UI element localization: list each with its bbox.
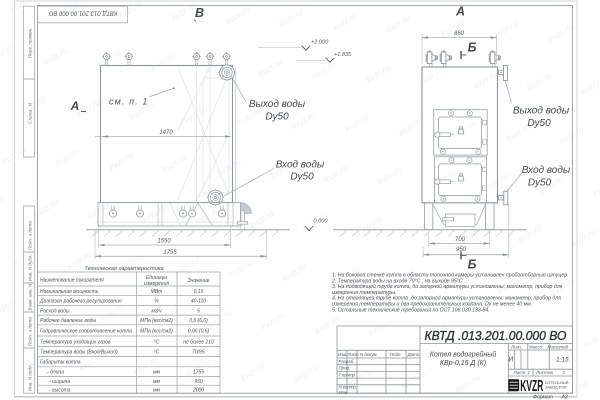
svg-text:см. п. 1: см. п. 1 xyxy=(109,97,148,107)
svg-text:Выход воды: Выход воды xyxy=(249,99,306,110)
svg-text:Разраб.: Разраб. xyxy=(339,359,355,364)
svg-text:5: 5 xyxy=(197,308,200,314)
svg-text:Взам. инв. N: Взам. инв. N xyxy=(28,283,33,310)
svg-text:Номинальная мощность: Номинальная мощность xyxy=(40,289,99,295)
svg-text:Вход воды: Вход воды xyxy=(276,160,325,171)
svg-text:не более 210: не более 210 xyxy=(183,339,214,345)
svg-text:измерения: измерения xyxy=(144,281,169,287)
svg-text:Формат: Формат xyxy=(533,394,553,400)
svg-text:Dy50: Dy50 xyxy=(527,118,551,129)
svg-text:0,06 (0,6): 0,06 (0,6) xyxy=(188,329,210,335)
svg-text:Значение: Значение xyxy=(188,278,210,284)
svg-text:Выход воды: Выход воды xyxy=(513,106,570,117)
svg-text:5. Остальные технические треб: 5. Остальные технические требования по О… xyxy=(332,307,490,313)
svg-text:950: 950 xyxy=(194,379,203,385)
svg-text:°С: °С xyxy=(154,339,160,345)
svg-text:В: В xyxy=(195,6,204,20)
svg-text:°С: °С xyxy=(154,350,160,356)
svg-text:Диапазон рабочего регулировани: Диапазон рабочего регулирования xyxy=(39,299,122,305)
svg-text:Инв. N дубл.: Инв. N дубл. xyxy=(28,254,33,281)
svg-text:Дата: Дата xyxy=(407,352,420,357)
svg-text:1:15: 1:15 xyxy=(556,357,569,364)
svg-text:Инв. N подл.: Инв. N подл. xyxy=(28,364,33,391)
svg-text:Н.контр.: Н.контр. xyxy=(339,385,358,390)
svg-text:Б: Б xyxy=(468,41,477,55)
svg-text:Справ. N: Справ. N xyxy=(28,102,33,124)
svg-text:МПа (кгс/см2): МПа (кгс/см2) xyxy=(140,329,173,335)
svg-text:Масштаб: Масштаб xyxy=(548,345,569,350)
svg-text:Dy50: Dy50 xyxy=(528,178,552,189)
svg-text:2: 2 xyxy=(562,370,566,375)
svg-text:Наименование показателя: Наименование показателя xyxy=(40,278,104,284)
svg-text:Подп. и дата: Подп. и дата xyxy=(28,317,33,346)
svg-text:Расход воды: Расход воды xyxy=(40,308,70,314)
svg-text:- длина: - длина xyxy=(47,370,64,376)
svg-text:КВТД.013.201.00.000 ВО: КВТД.013.201.00.000 ВО xyxy=(48,10,117,16)
svg-text:МПа (кгс/см2): МПа (кгс/см2) xyxy=(140,318,173,324)
svg-text:Перв. примен.: Перв. примен. xyxy=(28,27,33,58)
svg-text:+2.000: +2.000 xyxy=(311,40,329,46)
svg-text:Dy50: Dy50 xyxy=(265,112,289,123)
svg-text:700: 700 xyxy=(455,237,466,243)
svg-text:- ширина: - ширина xyxy=(49,379,70,385)
svg-text:Подп. и дата: Подп. и дата xyxy=(28,221,33,250)
svg-text:м3/ч: м3/ч xyxy=(151,308,162,314)
svg-text:Листов: Листов xyxy=(535,370,553,375)
svg-text:Масса: Масса xyxy=(529,345,543,350)
svg-text:МВт: МВт xyxy=(151,289,163,295)
svg-text:мм: мм xyxy=(153,387,160,393)
svg-text:Рабочее давление воды: Рабочее давление воды xyxy=(40,318,96,324)
svg-text:Изм.Лист: Изм.Лист xyxy=(338,352,359,357)
svg-text:1755: 1755 xyxy=(193,370,204,376)
svg-text:1755: 1755 xyxy=(163,250,177,256)
svg-text:Подп.: Подп. xyxy=(390,352,402,357)
svg-text:КОТЕЛЬНЫЙ: КОТЕЛЬНЫЙ xyxy=(545,381,568,385)
svg-text:Т.контр.: Т.контр. xyxy=(339,372,357,377)
svg-text:Утв.: Утв. xyxy=(339,390,349,395)
svg-text:+1.835: +1.835 xyxy=(334,52,352,58)
svg-text:0,6 (6,0): 0,6 (6,0) xyxy=(189,318,208,324)
svg-text:ЗАВОД РЭП: ЗАВОД РЭП xyxy=(545,385,566,389)
svg-text:70/95: 70/95 xyxy=(192,350,205,356)
svg-text:мм: мм xyxy=(153,370,160,376)
svg-text:1470: 1470 xyxy=(159,130,173,136)
svg-text:Температура уходящих газов: Температура уходящих газов xyxy=(40,339,111,345)
svg-text:Вход воды: Вход воды xyxy=(522,165,571,176)
svg-text:1: 1 xyxy=(528,370,531,375)
svg-text:Котел водогрейный: Котел водогрейный xyxy=(430,350,497,358)
svg-text:1550: 1550 xyxy=(157,239,171,245)
svg-text:А: А xyxy=(70,99,80,113)
svg-text:Габариты котла: Габариты котла xyxy=(40,360,81,366)
svg-text:мм: мм xyxy=(153,379,160,385)
svg-text:КВТД .013.201.00.000 ВО: КВТД .013.201.00.000 ВО xyxy=(425,329,567,343)
svg-text:0,15: 0,15 xyxy=(194,289,204,295)
svg-text:Температура воды (Вход/Выход): Температура воды (Вход/Выход) xyxy=(40,350,118,356)
svg-text:0.000: 0.000 xyxy=(314,218,329,224)
svg-text:Техническая характеристика: Техническая характеристика xyxy=(84,266,163,272)
svg-text:2000: 2000 xyxy=(192,387,204,393)
svg-text:Dy50: Dy50 xyxy=(290,172,314,183)
svg-text:860: 860 xyxy=(454,31,465,37)
svg-text:%: % xyxy=(154,299,159,305)
svg-text:А3: А3 xyxy=(561,394,568,400)
svg-text:Лит.: Лит. xyxy=(510,345,522,350)
svg-text:40-110: 40-110 xyxy=(191,299,206,305)
svg-text:Лист: Лист xyxy=(513,370,526,375)
svg-text:Пров.: Пров. xyxy=(339,366,351,371)
svg-text:Гидравлическое сопротивление к: Гидравлическое сопротивление котла xyxy=(40,329,132,335)
svg-text:Б: Б xyxy=(468,258,477,272)
svg-text:KVZR: KVZR xyxy=(520,378,543,395)
svg-text:- высота: - высота xyxy=(49,387,71,393)
svg-text:N докум.: N докум. xyxy=(360,352,378,357)
svg-text:А: А xyxy=(455,5,465,19)
svg-text:КВр-0,15 Д (К): КВр-0,15 Д (К) xyxy=(440,360,486,367)
